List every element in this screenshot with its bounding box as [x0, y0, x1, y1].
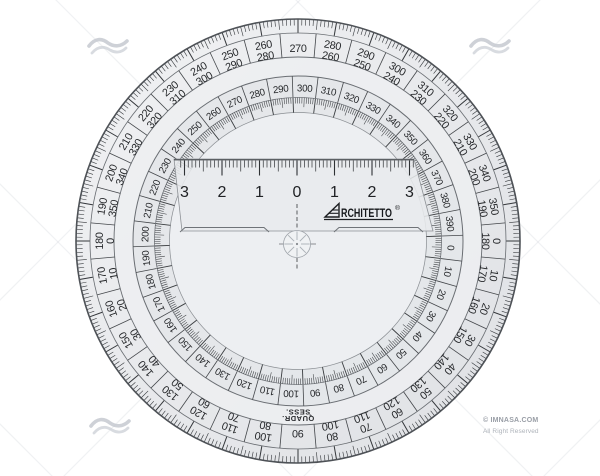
inner-scale-label: 300: [297, 83, 314, 95]
brand-text: RCHITETTO: [341, 208, 392, 220]
outer-scale-label: 0: [105, 238, 117, 244]
outer-scale-label: 90: [292, 427, 304, 439]
protractor: 2702802602902503002403102303202203302103…: [0, 0, 600, 476]
outer-scale-label: 0: [490, 238, 502, 244]
outer-scale-label: 180: [94, 232, 106, 249]
disc-system-label: SESS.QUADR.: [282, 407, 315, 423]
inner-scale-label: 390: [443, 215, 456, 232]
inner-scale-label: 190: [140, 249, 153, 266]
ruler-number: 1: [330, 184, 339, 201]
ruler-number: 3: [180, 184, 189, 201]
ruler-number: 1: [255, 184, 264, 201]
product-photo: 2702802602902503002403102303202203302103…: [0, 0, 600, 476]
inner-scale-label: 200: [140, 226, 152, 243]
center-ruler: 3210123RCHITETTO®: [174, 159, 433, 232]
registered-mark: ®: [395, 204, 400, 212]
ruler-number: 3: [405, 184, 414, 201]
outer-scale-label: 10: [107, 267, 121, 281]
ruler-number: 0: [293, 184, 302, 201]
inner-scale-label: 100: [283, 387, 300, 399]
outer-scale-label: 270: [289, 43, 306, 55]
inner-scale-label: 290: [272, 83, 289, 96]
ruler-body: [174, 159, 433, 231]
ruler-number: 2: [368, 184, 377, 201]
svg-text:QUADR.: QUADR.: [282, 414, 315, 423]
outer-scale-label: 180: [479, 232, 491, 249]
outer-scale-label: 80: [259, 418, 273, 432]
ruler-number: 2: [218, 184, 227, 201]
